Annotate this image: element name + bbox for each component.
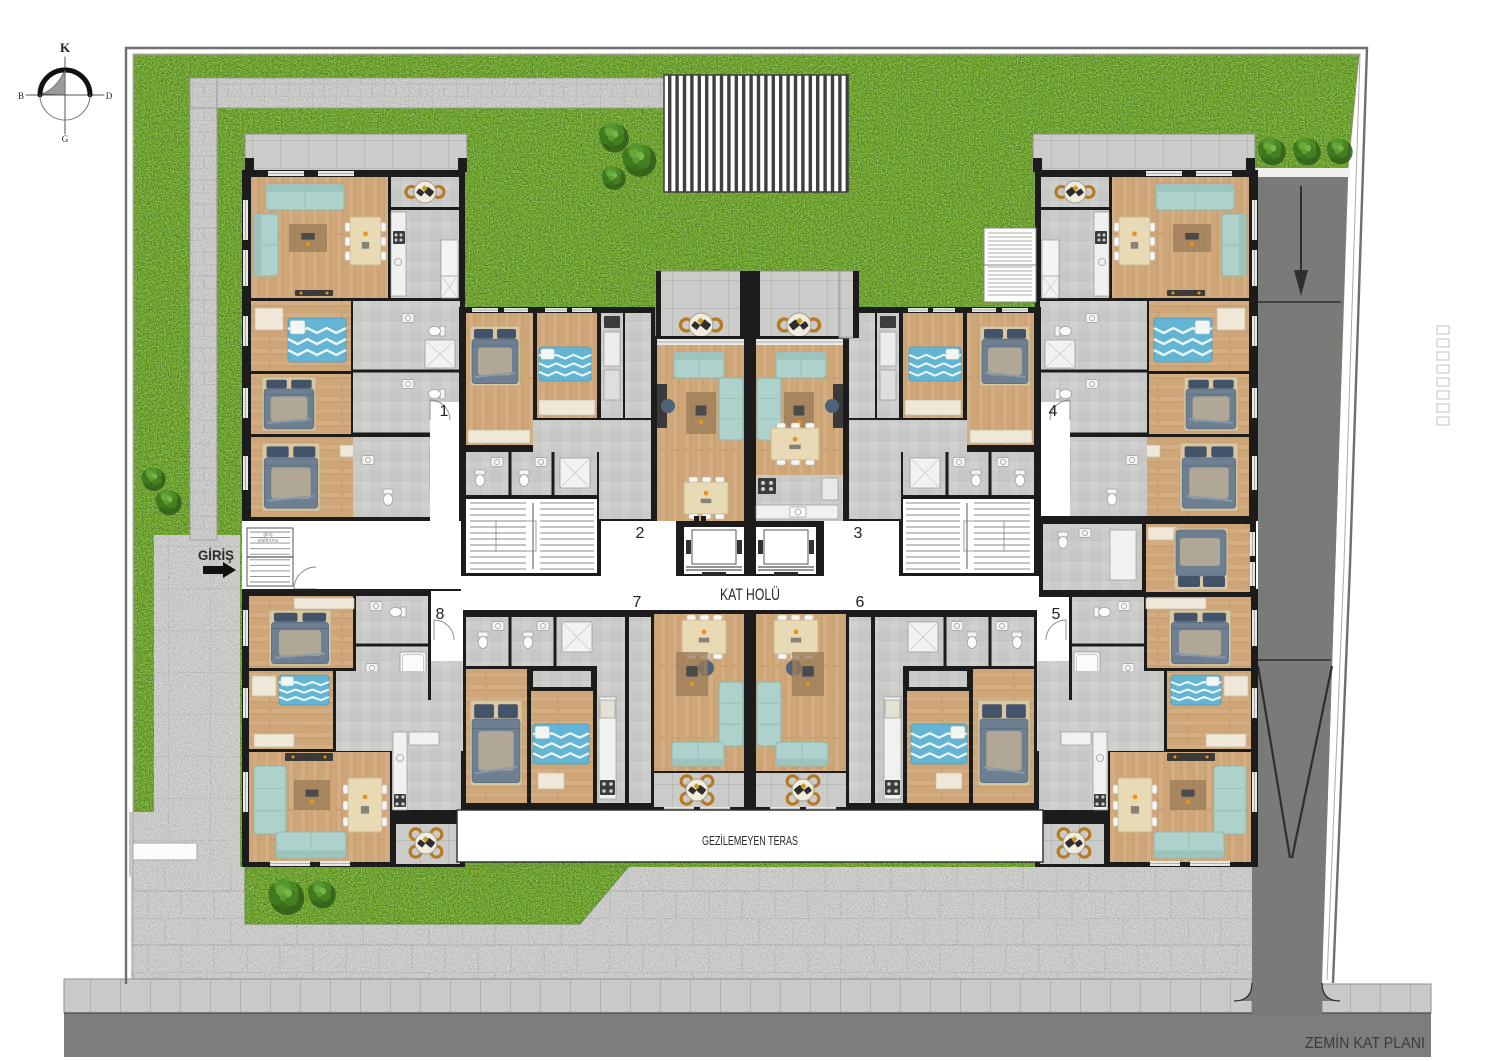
svg-text:6: 6 <box>856 594 865 611</box>
svg-text:D: D <box>106 91 113 101</box>
svg-text:4: 4 <box>1049 403 1058 420</box>
svg-text:1: 1 <box>440 403 449 420</box>
svg-text:8: 8 <box>436 606 445 623</box>
svg-text:platformu: platformu <box>258 538 279 544</box>
svg-text:B: B <box>18 91 24 101</box>
svg-text:3: 3 <box>854 525 863 542</box>
svg-text:5: 5 <box>1052 606 1061 623</box>
svg-text:GEZİLEMEYEN TERAS: GEZİLEMEYEN TERAS <box>702 834 798 848</box>
svg-text:ZEMİN KAT PLANI: ZEMİN KAT PLANI <box>1305 1034 1425 1052</box>
svg-text:K: K <box>60 40 71 55</box>
svg-text:KAT HOLÜ: KAT HOLÜ <box>720 586 780 604</box>
svg-text:G: G <box>62 134 69 144</box>
svg-text:7: 7 <box>633 594 642 611</box>
svg-text:2: 2 <box>636 525 645 542</box>
svg-text:GİRİŞ: GİRİŞ <box>198 548 234 563</box>
